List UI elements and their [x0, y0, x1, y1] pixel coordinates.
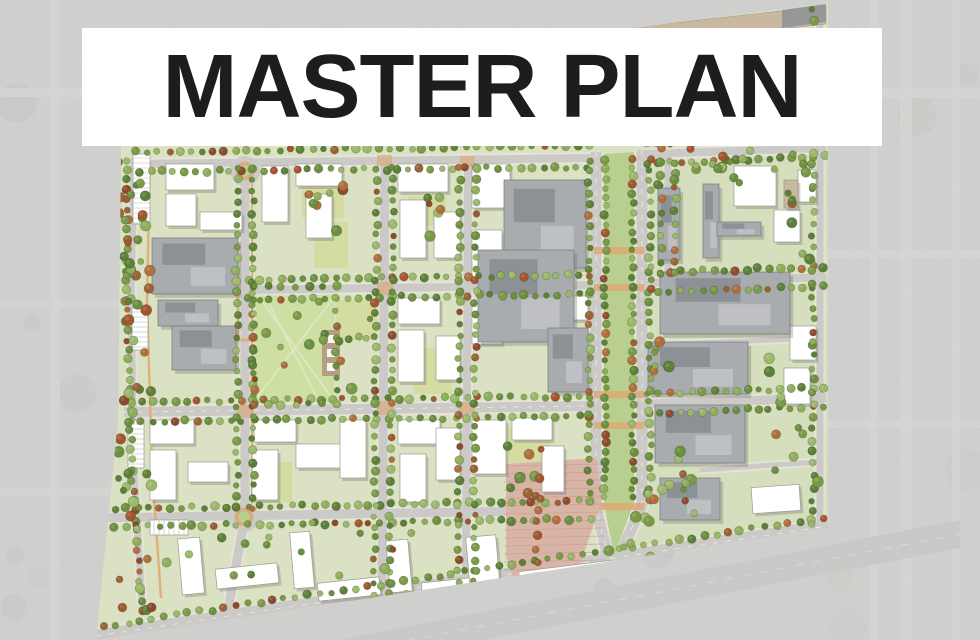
- white-building: [542, 446, 566, 495]
- white-building: [774, 210, 802, 245]
- white-building: [400, 454, 428, 505]
- white-building: [751, 484, 803, 516]
- white-building: [262, 166, 290, 225]
- gray-building: [717, 222, 764, 240]
- white-building: [296, 444, 344, 471]
- white-building: [254, 420, 298, 445]
- gray-building: [548, 328, 591, 396]
- gray-building: [158, 300, 221, 330]
- white-building: [166, 194, 198, 229]
- white-building: [734, 166, 778, 209]
- gray-building: [152, 238, 241, 298]
- white-building: [340, 420, 368, 481]
- white-building: [398, 330, 426, 385]
- white-building: [150, 450, 178, 503]
- white-building: [178, 537, 207, 598]
- gray-building: [660, 272, 793, 338]
- white-building: [400, 200, 428, 261]
- white-building: [188, 462, 230, 485]
- page-title: MASTER PLAN: [163, 42, 802, 132]
- screenshot-root: MASTER PLAN: [0, 0, 980, 640]
- white-building: [512, 418, 554, 443]
- gray-building: [172, 326, 239, 374]
- title-banner: MASTER PLAN: [82, 28, 882, 146]
- white-building: [398, 298, 442, 327]
